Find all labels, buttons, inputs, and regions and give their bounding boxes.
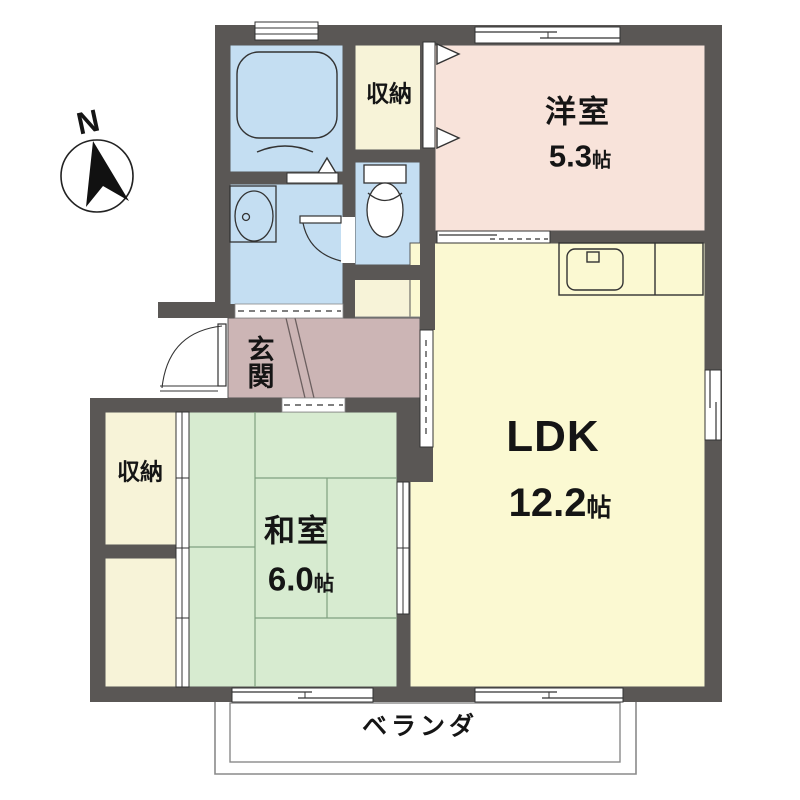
closet-left-sliding-doors xyxy=(176,412,189,687)
room-label-ldk: LDK xyxy=(506,415,599,459)
room-washitsu xyxy=(189,412,397,687)
room-bathroom xyxy=(230,45,343,172)
ldk-window xyxy=(475,688,623,702)
room-ldk xyxy=(410,243,705,687)
room-size-ldk: 12.2帖 xyxy=(509,483,612,523)
floor-plan: N 洋室 5.3帖 LDK 12.2帖 和室 6.0帖 収納 収納 玄関 ベラン… xyxy=(0,0,800,800)
washitsu-window xyxy=(232,688,373,702)
bath-door-opening xyxy=(287,173,338,183)
washroom-opening xyxy=(235,304,343,318)
room-label-genkan: 玄関 xyxy=(245,335,272,389)
washitsu-entry-door xyxy=(282,398,345,412)
room-label-washitsu: 和室 xyxy=(264,516,330,547)
washitsu-ldk-fusuma xyxy=(397,482,409,614)
floor-plan-drawing xyxy=(0,0,800,800)
compass xyxy=(61,140,133,212)
room-label-closet-top: 収納 xyxy=(366,83,412,106)
room-label-veranda: ベランダ xyxy=(362,715,478,740)
yoshitsu-window xyxy=(475,27,620,43)
kitchen-counter xyxy=(559,243,703,295)
ldk-side-window xyxy=(705,370,721,440)
bath-window xyxy=(255,22,318,40)
room-size-washitsu: 6.0帖 xyxy=(268,563,334,596)
room-washroom xyxy=(230,184,343,306)
entrance-door xyxy=(160,324,226,391)
room-label-closet-left: 収納 xyxy=(117,461,163,484)
yoshitsu-sliding-door xyxy=(437,231,550,243)
ldk-entry-door xyxy=(420,330,433,447)
room-size-yoshitsu: 5.3帖 xyxy=(549,141,611,172)
toilet xyxy=(364,165,406,237)
room-label-yoshitsu: 洋室 xyxy=(545,97,611,128)
room-closet-left-lower xyxy=(105,558,176,687)
